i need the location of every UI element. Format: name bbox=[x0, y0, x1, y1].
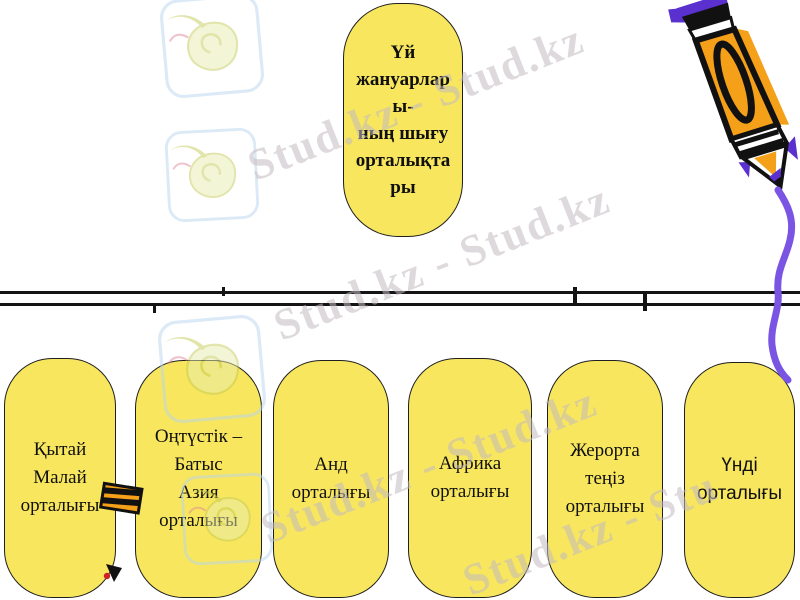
connector-tick bbox=[222, 287, 225, 296]
stud-kz-logo-icon bbox=[161, 116, 263, 235]
pencil-stroke-squiggle bbox=[740, 182, 800, 392]
center-box-line: теңіз bbox=[585, 465, 625, 493]
center-box-line: орталығы bbox=[21, 492, 100, 520]
stud-kz-logo-icon bbox=[152, 0, 273, 103]
root-box-line: орталықта bbox=[356, 147, 451, 174]
slide-canvas: Үй жануарлар ы- ның шығу орталықта ры Қы… bbox=[0, 0, 800, 600]
stud-kz-logo-icon bbox=[153, 304, 271, 435]
center-box-line: Жерорта bbox=[570, 437, 640, 465]
pencil-illustration-icon bbox=[615, 0, 800, 205]
connector-tick bbox=[643, 291, 647, 311]
root-box-line: ры bbox=[390, 174, 415, 201]
root-box-line: Үй bbox=[391, 39, 416, 66]
center-box-line: Үнді bbox=[721, 452, 757, 480]
center-box-line: Қытай bbox=[34, 436, 87, 464]
center-box-line: Малай bbox=[33, 464, 87, 492]
connector-tick bbox=[573, 287, 577, 305]
center-box-china-malay: Қытай Малай орталығы bbox=[4, 358, 116, 598]
